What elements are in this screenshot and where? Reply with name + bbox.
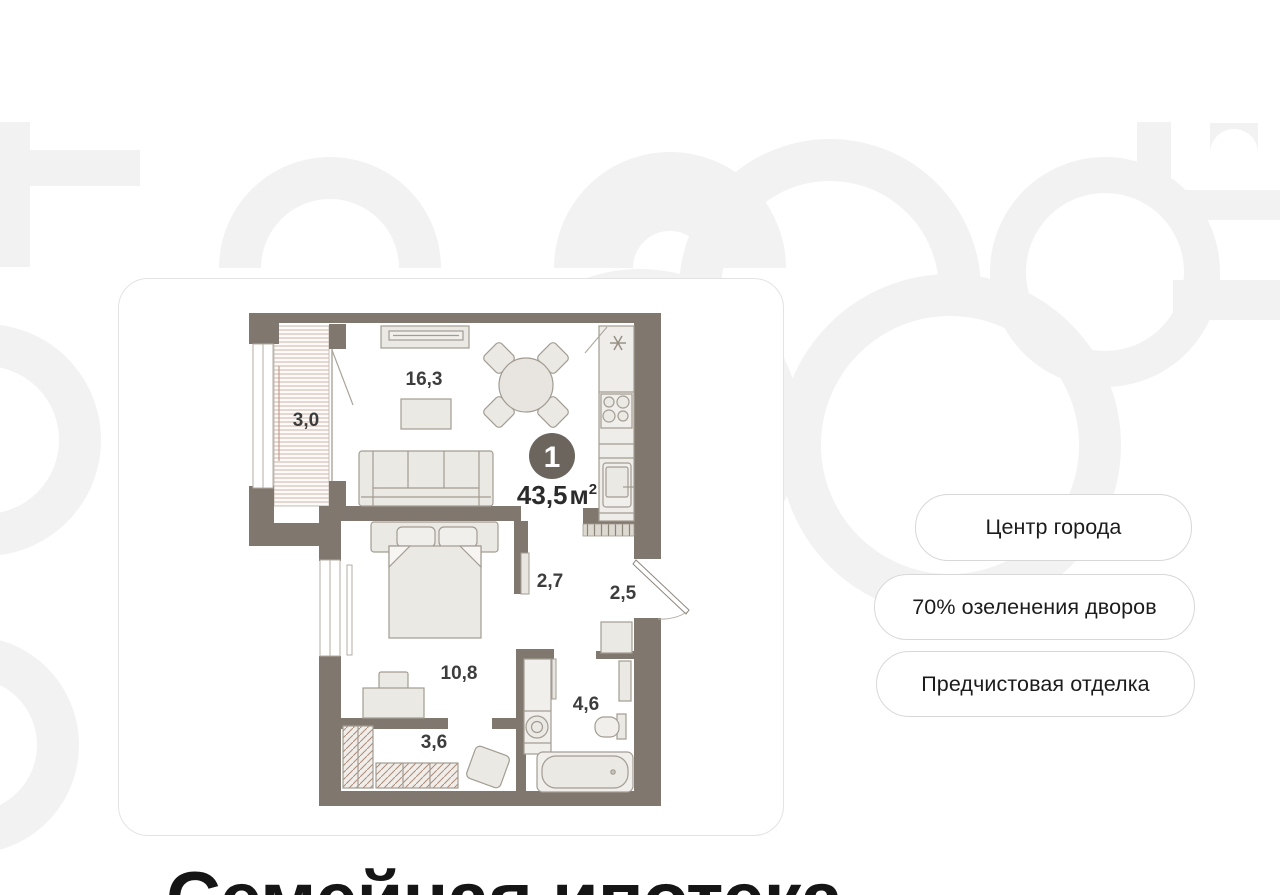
badge-finishing: Предчистовая отделка [876,651,1195,717]
bathtub [537,752,633,792]
pouf [465,745,510,789]
coffee-table [401,399,451,429]
entry-cabinet [601,622,632,653]
entry-door-swing-arc [658,612,687,619]
toilet [595,714,626,739]
desk-chair [379,672,408,689]
dining-table [482,341,570,429]
tv-console [381,326,469,348]
badge-greenery-label: 70% озеленения дворов [912,595,1157,620]
badge-city-center: Центр города [915,494,1192,561]
stove [601,394,632,428]
sofa [359,451,493,506]
entry-area-label: 2,5 [610,583,637,604]
bedroom-door-leaf [521,553,529,594]
watermark-bar-icon [0,122,30,267]
balcony-area-label: 3,0 [293,410,319,431]
entry-door-leaf [633,560,689,614]
bed [371,522,498,638]
real-estate-flyer: 3,0 16,3 2,7 2,5 10,8 3,6 4,6 1 43,5м2 Ц… [0,0,1280,895]
balcony-door-leaf [332,350,353,405]
wardrobe-area-label: 3,6 [421,732,447,753]
watermark-arch-icon [240,178,420,268]
living-area-label: 16,3 [406,369,443,390]
desk [363,688,424,718]
hallway-area-label: 2,7 [537,571,563,592]
badge-finishing-label: Предчистовая отделка [921,672,1150,697]
bathroom-door-leaf [552,659,556,699]
floor-plan: 3,0 16,3 2,7 2,5 10,8 3,6 4,6 1 43,5м2 [241,301,701,821]
headline: Семейная ипотека [166,856,842,895]
hall-rack [583,524,634,536]
bedroom-area-label: 10,8 [441,663,478,684]
badge-city-center-label: Центр города [986,515,1122,540]
badge-greenery: 70% озеленения дворов [874,574,1195,640]
floorplan-card[interactable]: 3,0 16,3 2,7 2,5 10,8 3,6 4,6 1 43,5м2 [118,278,784,836]
kitchen-sink [603,463,634,507]
washer-column [524,659,551,754]
total-area-label: 43,5м2 [517,480,597,510]
bathroom-area-label: 4,6 [573,694,599,715]
bath-shelf [619,661,631,701]
room-count-number: 1 [544,441,561,474]
